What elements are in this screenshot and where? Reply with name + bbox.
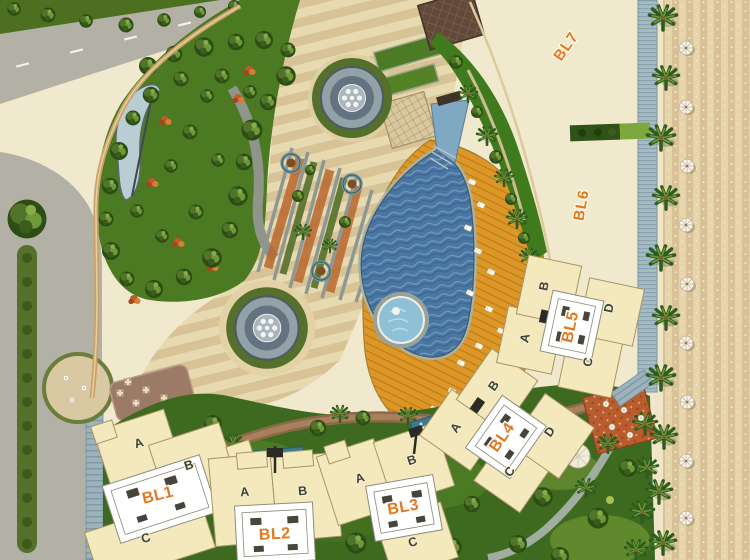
tree-icon — [509, 535, 527, 553]
tree-icon — [211, 153, 225, 167]
tree-icon — [174, 72, 189, 87]
tree-icon — [119, 18, 134, 33]
hedge-divider — [570, 123, 651, 142]
road-roundabout-tree — [8, 200, 47, 239]
tree-icon — [102, 242, 120, 260]
table-icon — [117, 390, 124, 397]
tree-icon — [194, 6, 206, 18]
shrub-icon — [449, 55, 463, 69]
tree-icon — [255, 31, 273, 49]
table-icon — [69, 397, 75, 403]
tree-icon — [588, 508, 609, 529]
table-icon — [627, 432, 633, 438]
tree-icon — [276, 66, 296, 86]
tree-icon — [176, 269, 193, 286]
shrub-icon — [339, 216, 351, 228]
tree-icon — [130, 204, 144, 218]
tree-icon — [260, 94, 277, 111]
tree-icon — [200, 89, 214, 103]
roundabout-tree-icon — [8, 200, 47, 239]
round-terrace — [44, 354, 112, 422]
tree-icon — [346, 533, 367, 554]
tree-icon — [310, 420, 327, 437]
tree-icon — [194, 37, 214, 57]
shrub-icon — [505, 193, 517, 205]
tree-icon — [228, 186, 248, 206]
bl2-wing-a: A — [240, 485, 250, 500]
tree-icon — [99, 212, 114, 227]
table-icon — [133, 400, 140, 407]
fountain-lower-icon — [226, 287, 308, 369]
tree-icon — [619, 459, 637, 477]
site-plan-svg: A B C A B A B C A B C D A B C D BL1 BL2 … — [0, 0, 750, 560]
fountain-upper-icon — [312, 58, 392, 138]
bl2-wing-b: B — [298, 484, 308, 499]
tree-icon — [281, 43, 296, 58]
table-icon — [81, 385, 87, 391]
site-plan: A B C A B A B C A B C D A B C D BL1 BL2 … — [0, 0, 750, 560]
shrub-icon — [489, 150, 503, 164]
tree-icon — [356, 411, 371, 426]
block-label-bl2: BL2 — [258, 525, 291, 544]
table-icon — [63, 375, 69, 381]
table-icon — [143, 387, 150, 394]
tree-icon — [145, 280, 163, 298]
tree-icon — [236, 154, 253, 171]
tree-icon — [464, 496, 481, 513]
tree-icon — [164, 159, 178, 173]
table-icon — [125, 379, 132, 386]
shrub-icon — [292, 190, 304, 202]
tree-icon — [215, 69, 230, 84]
tree-icon — [533, 487, 553, 507]
table-icon — [603, 401, 609, 407]
tree-icon — [7, 2, 21, 16]
tree-icon — [110, 142, 128, 160]
tree-icon — [157, 13, 171, 27]
kids-pool-float — [392, 307, 400, 315]
tree-icon — [41, 8, 56, 23]
tree-icon — [183, 125, 198, 140]
tree-icon — [155, 229, 169, 243]
tree-icon — [126, 111, 141, 126]
tree-icon — [243, 85, 257, 99]
tree-icon — [79, 14, 93, 28]
tree-icon — [189, 205, 204, 220]
table-icon — [609, 424, 615, 430]
tree-icon — [120, 272, 135, 287]
tree-icon — [202, 248, 222, 268]
tree-icon — [102, 178, 119, 195]
tree-icon — [242, 120, 263, 141]
shrub-icon — [518, 232, 530, 244]
tree-icon — [143, 87, 160, 104]
table-icon — [638, 415, 644, 421]
shrub-icon — [471, 106, 483, 118]
table-icon — [621, 407, 627, 413]
shrub-icon — [305, 165, 316, 176]
tree-icon — [228, 34, 245, 51]
tree-icon — [222, 222, 239, 239]
